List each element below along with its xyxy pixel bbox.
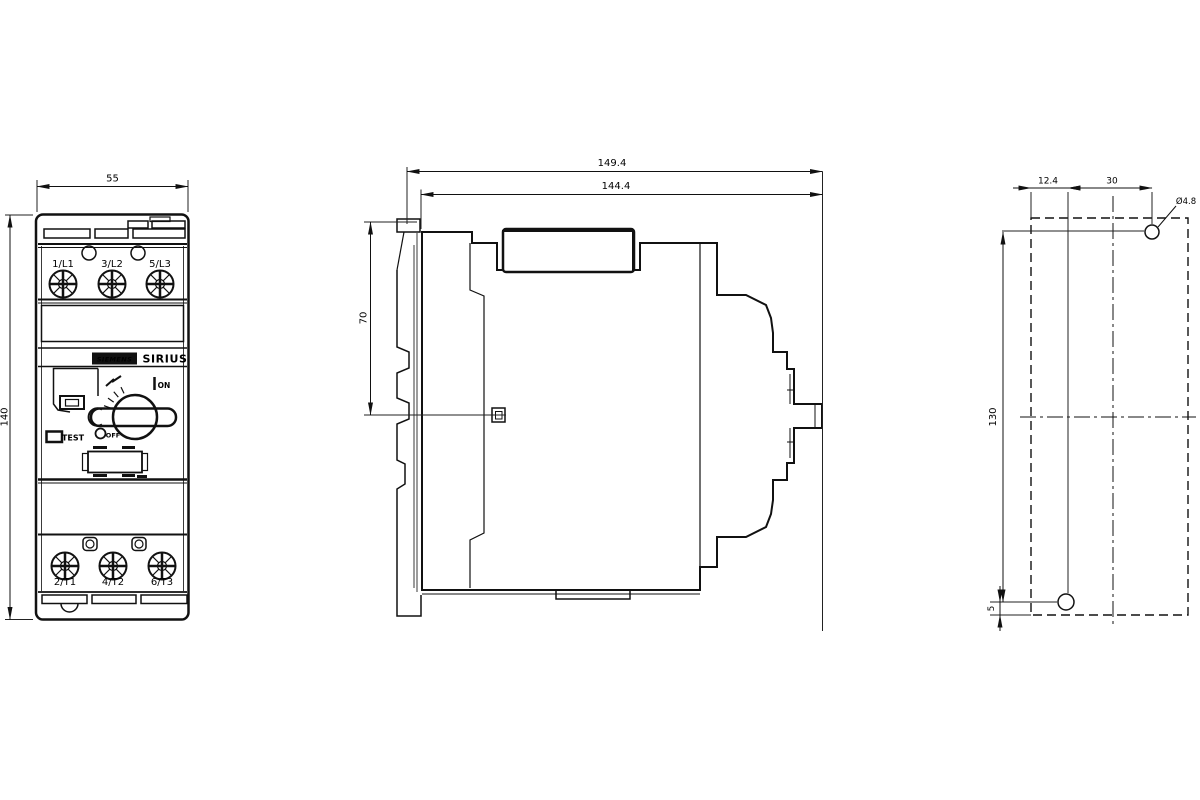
terminal-screw-3L2	[99, 271, 126, 298]
side-terminal-cover-block	[503, 229, 634, 272]
terminal-label-2T1: 2/T1	[54, 577, 76, 588]
off-position-mark	[96, 429, 106, 439]
rotary-switch-knob[interactable]	[89, 395, 176, 439]
drill-bottom-offset-text: 5	[987, 606, 997, 612]
drill-bottom-offset-dimension: 5	[987, 586, 1000, 631]
front-height-dim-text: 140	[0, 407, 11, 426]
drill-vertical-dimension: 130	[988, 232, 1003, 602]
side-mounting-depth-dimension: 144.4	[421, 181, 823, 229]
terminal-label-5L3: 5/L3	[149, 259, 171, 270]
terminal-screw-5L3	[147, 271, 174, 298]
front-view: 1/L1 3/L2 5/L3 SIEMENS SIRIUS	[0, 174, 189, 620]
drill-offset-text: 12.4	[1038, 177, 1058, 187]
hole-diameter-callout: Ø4.8	[1158, 196, 1196, 227]
off-label: OFF	[106, 432, 120, 440]
drill-offset-dimension: 12.4	[1013, 177, 1086, 189]
series-label: SIRIUS	[142, 353, 187, 366]
current-setting-dial[interactable]	[60, 396, 84, 409]
marking-window	[83, 448, 148, 477]
side-axis-height-text: 70	[359, 312, 370, 325]
hole-diameter-text: Ø4.8	[1176, 196, 1196, 207]
mounting-hole-bottom	[1058, 594, 1074, 610]
front-width-dim-text: 55	[106, 174, 119, 185]
terminal-label-4T2: 4/T2	[102, 577, 124, 588]
side-knob-shaft	[787, 374, 815, 458]
front-top-terminals: 1/L1 3/L2 5/L3	[38, 246, 187, 303]
brand-label: SIEMENS	[97, 356, 132, 364]
nameplate-blank-area	[42, 306, 184, 342]
front-height-dimension: 140	[0, 215, 33, 620]
auxiliary-slot-left	[83, 538, 97, 551]
dimension-drawing: 1/L1 3/L2 5/L3 SIEMENS SIRIUS	[0, 0, 1200, 800]
drilling-plan: 12.4 30 Ø4.8 130 5	[987, 177, 1196, 632]
side-mounting-depth-text: 144.4	[602, 181, 631, 192]
terminal-screw-4T2	[100, 553, 127, 580]
side-body-outline	[422, 231, 822, 590]
mounting-hole-top	[1145, 225, 1159, 239]
front-bottom-terminals: 2/T1 4/T2 6/T3	[38, 535, 187, 613]
side-view: 149.4 144.4 70	[359, 158, 823, 631]
drill-spacing-dimension: 30	[1068, 177, 1152, 189]
technical-drawing-page: 1/L1 3/L2 5/L3 SIEMENS SIRIUS	[0, 0, 1200, 800]
test-label: TEST	[62, 434, 85, 443]
setting-scale-ticks	[104, 387, 124, 408]
brand-band: SIEMENS SIRIUS	[38, 348, 188, 367]
terminal-screw-1L1	[50, 271, 77, 298]
terminal-screw-2T1	[52, 553, 79, 580]
terminal-screw-6T3	[149, 553, 176, 580]
test-button[interactable]	[47, 432, 63, 443]
front-width-dimension: 55	[37, 174, 188, 213]
terminal-label-1L1: 1/L1	[52, 259, 74, 270]
auxiliary-slot-right	[132, 538, 146, 551]
front-top-cap	[38, 217, 187, 248]
terminal-label-6T3: 6/T3	[151, 577, 173, 588]
terminal-label-3L2: 3/L2	[101, 259, 123, 270]
on-label: ON	[158, 381, 171, 390]
drill-spacing-text: 30	[1106, 177, 1118, 187]
side-overall-depth-text: 149.4	[598, 158, 627, 169]
control-area: ON OFF TEST	[38, 369, 187, 484]
drill-vertical-text: 130	[988, 407, 999, 426]
